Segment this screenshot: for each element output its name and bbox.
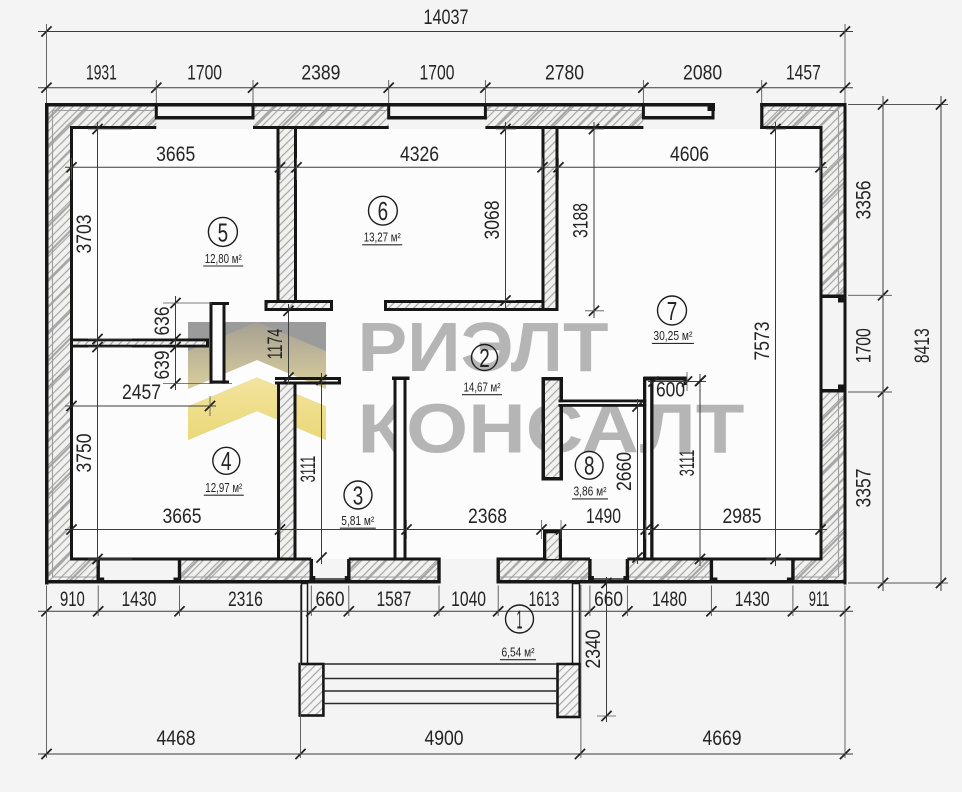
svg-text:911: 911 <box>809 587 830 611</box>
svg-text:600: 600 <box>656 379 685 402</box>
svg-text:7573: 7573 <box>751 321 774 360</box>
svg-text:2660: 2660 <box>613 452 636 491</box>
svg-text:639: 639 <box>151 351 174 380</box>
svg-text:7: 7 <box>667 296 678 326</box>
svg-text:5: 5 <box>218 217 229 247</box>
svg-text:4606: 4606 <box>670 142 709 166</box>
svg-text:1174: 1174 <box>264 328 287 359</box>
svg-text:1490: 1490 <box>586 504 621 528</box>
svg-text:3357: 3357 <box>853 468 876 507</box>
svg-text:4669: 4669 <box>702 726 741 750</box>
svg-text:3068: 3068 <box>481 200 504 239</box>
svg-text:3703: 3703 <box>73 214 96 253</box>
svg-text:5,81 м²: 5,81 м² <box>341 514 374 528</box>
svg-text:3,86 м²: 3,86 м² <box>574 485 607 499</box>
svg-text:14,67 м²: 14,67 м² <box>464 381 501 395</box>
svg-text:2316: 2316 <box>228 587 263 611</box>
svg-text:3750: 3750 <box>73 433 96 472</box>
svg-text:2080: 2080 <box>683 61 722 85</box>
svg-text:3356: 3356 <box>853 180 876 219</box>
svg-text:2340: 2340 <box>582 629 605 668</box>
svg-text:6: 6 <box>378 196 389 226</box>
svg-text:8413: 8413 <box>911 328 934 363</box>
svg-text:1480: 1480 <box>652 587 687 611</box>
svg-text:1700: 1700 <box>420 61 455 85</box>
svg-text:1: 1 <box>517 604 523 634</box>
svg-text:2368: 2368 <box>468 504 507 528</box>
svg-text:3188: 3188 <box>570 203 593 238</box>
svg-text:2: 2 <box>479 343 490 373</box>
svg-text:910: 910 <box>60 587 85 611</box>
svg-text:660: 660 <box>594 587 623 611</box>
svg-text:4900: 4900 <box>424 726 463 750</box>
svg-text:30,25 м²: 30,25 м² <box>653 329 692 343</box>
svg-text:2985: 2985 <box>722 504 761 528</box>
svg-text:2457: 2457 <box>122 380 161 404</box>
svg-text:1700: 1700 <box>853 328 876 363</box>
svg-text:636: 636 <box>151 307 174 336</box>
svg-text:3111: 3111 <box>676 450 699 477</box>
svg-text:1430: 1430 <box>735 587 770 611</box>
svg-text:3665: 3665 <box>156 142 195 166</box>
svg-text:1613: 1613 <box>529 587 560 611</box>
svg-text:1931: 1931 <box>86 61 117 85</box>
svg-text:1700: 1700 <box>187 61 222 85</box>
svg-text:3665: 3665 <box>162 504 201 528</box>
svg-text:6,54 м²: 6,54 м² <box>502 646 535 660</box>
svg-text:3: 3 <box>353 480 364 510</box>
svg-text:660: 660 <box>316 587 345 611</box>
svg-text:1457: 1457 <box>786 61 821 85</box>
svg-text:13,27 м²: 13,27 м² <box>364 231 401 245</box>
svg-text:3111: 3111 <box>297 456 320 483</box>
svg-text:1040: 1040 <box>451 587 486 611</box>
svg-text:1430: 1430 <box>121 587 156 611</box>
svg-text:14037: 14037 <box>424 5 469 29</box>
svg-text:4468: 4468 <box>156 726 195 750</box>
svg-text:12,97 м²: 12,97 м² <box>205 481 242 495</box>
svg-text:1587: 1587 <box>376 587 411 611</box>
svg-text:4326: 4326 <box>400 142 439 166</box>
svg-text:2389: 2389 <box>301 61 340 85</box>
svg-text:8: 8 <box>584 451 595 481</box>
svg-text:2780: 2780 <box>545 61 584 85</box>
svg-text:4: 4 <box>221 446 232 476</box>
svg-text:12,80 м²: 12,80 м² <box>205 252 242 266</box>
